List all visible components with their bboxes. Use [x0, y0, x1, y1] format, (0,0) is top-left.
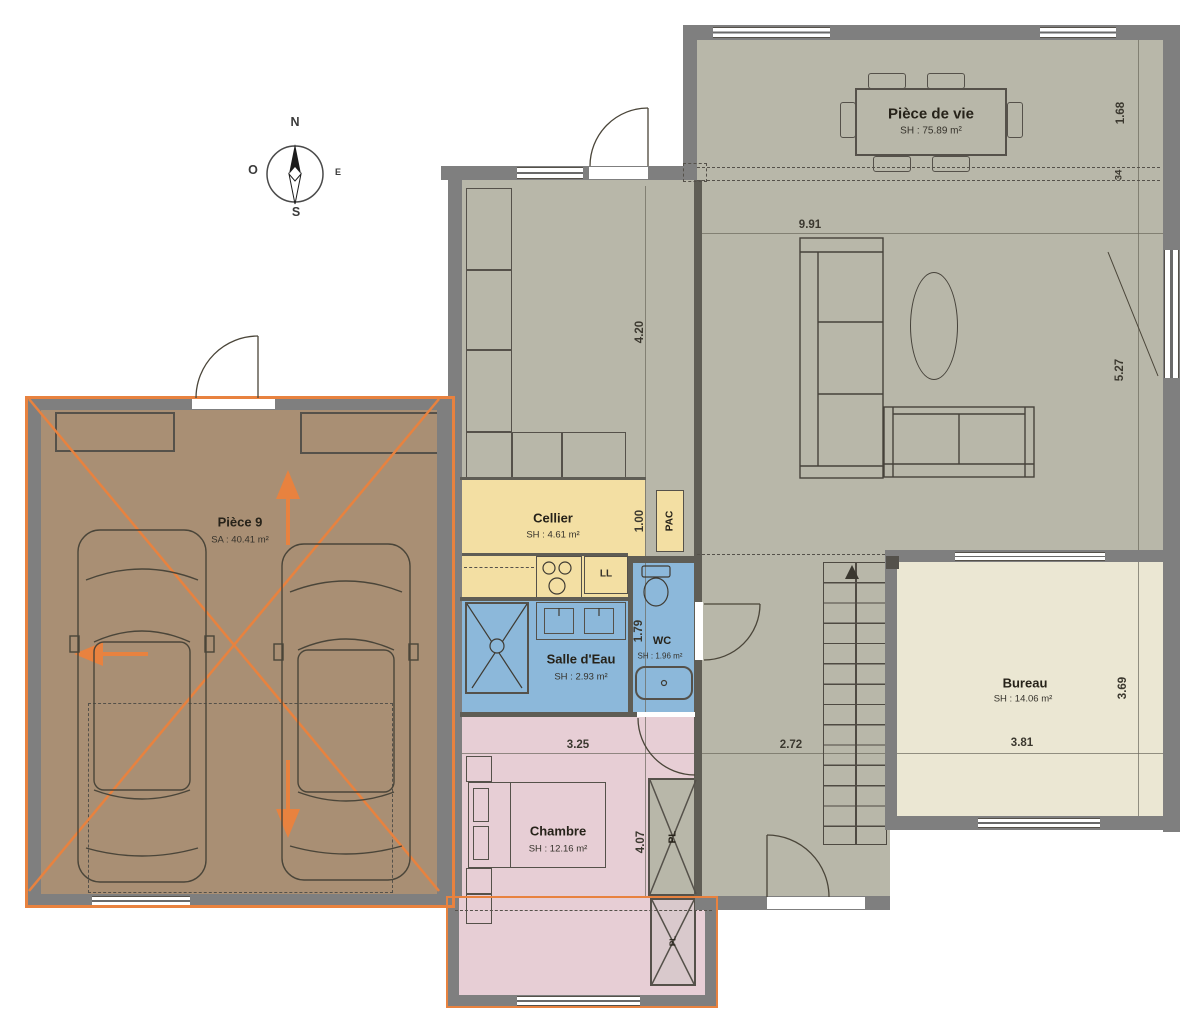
compass-east: E: [335, 167, 341, 177]
label-lave-linge: LL: [600, 569, 612, 580]
dim-34: 34: [1114, 170, 1125, 181]
room-label-wc: WC: [653, 635, 671, 647]
arrow-down-icon: [276, 809, 300, 838]
post: [886, 556, 899, 569]
toilet-icon: [642, 566, 670, 577]
room-label-bureau: Bureau: [1003, 676, 1048, 691]
room-label-salle-eau: Salle d'Eau: [547, 652, 616, 667]
dim-1-00: 1.00: [634, 510, 646, 532]
compass-north: N: [290, 115, 299, 129]
dim-2-72: 2.72: [780, 739, 802, 751]
dim-3-81: 3.81: [1011, 737, 1033, 749]
room-label-piece-de-vie: Pièce de vie: [888, 106, 974, 123]
garage-cross-lines: [29, 399, 439, 891]
door-swings: [196, 108, 1158, 897]
car-right: [274, 544, 418, 880]
room-label-chambre: Chambre: [530, 824, 586, 839]
arrow-up-icon: [276, 470, 300, 499]
stairs-direction: [845, 556, 899, 579]
room-area-bureau: SH : 14.06 m²: [994, 694, 1053, 705]
compass-needle-icon: [289, 144, 301, 174]
sofa-set: [800, 238, 1034, 478]
room-area-wc: SH : 1.96 m²: [638, 652, 683, 661]
dim-1-68: 1.68: [1115, 102, 1127, 124]
floor-plan: N O E S Pièce de vie SH : 75.89 m² Celli…: [0, 0, 1200, 1019]
dim-4-20: 4.20: [634, 321, 646, 343]
label-pac: PAC: [665, 511, 676, 531]
label-placard-2: PL: [669, 936, 678, 946]
room-area-salle-eau: SH : 2.93 m²: [554, 672, 607, 683]
compass-south: S: [292, 205, 300, 219]
closet-cross-lines: [650, 780, 696, 984]
dim-5-27: 5.27: [1114, 359, 1126, 381]
dim-3-25: 3.25: [567, 739, 589, 751]
dim-1-79: 1.79: [633, 620, 645, 642]
dim-3-69: 3.69: [1117, 677, 1129, 699]
room-label-piece9: Pièce 9: [218, 515, 263, 530]
dim-4-07: 4.07: [635, 831, 647, 853]
direction-arrows: [74, 470, 300, 838]
room-area-piece9: SA : 40.41 m²: [211, 535, 269, 546]
label-placard: PL: [668, 831, 679, 844]
room-area-piece-de-vie: SH : 75.89 m²: [900, 126, 962, 137]
room-area-cellier: SH : 4.61 m²: [526, 530, 579, 541]
room-label-cellier: Cellier: [533, 511, 573, 526]
stairs-arrow-icon: [845, 565, 859, 579]
compass-west: O: [248, 163, 258, 177]
plan-linework: [0, 0, 1200, 1019]
room-area-chambre: SH : 12.16 m²: [529, 844, 588, 855]
car-left: [70, 530, 214, 882]
dim-9-91: 9.91: [799, 219, 821, 231]
